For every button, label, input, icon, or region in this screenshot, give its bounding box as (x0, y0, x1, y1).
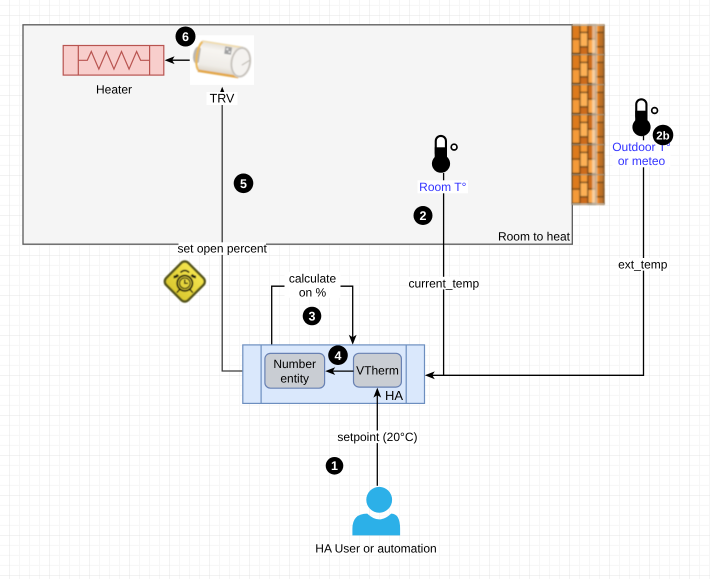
svg-text:Room T°: Room T° (419, 180, 466, 194)
svg-text:on %: on % (299, 285, 327, 299)
svg-text:2b: 2b (656, 130, 669, 142)
svg-text:HA: HA (385, 388, 403, 403)
svg-text:or meteo: or meteo (618, 154, 666, 168)
svg-text:6: 6 (182, 30, 189, 44)
svg-text:calculate: calculate (289, 271, 337, 285)
svg-text:TRV: TRV (210, 92, 235, 106)
svg-text:setpoint (20°C): setpoint (20°C) (337, 430, 417, 444)
svg-text:3: 3 (309, 310, 316, 324)
svg-text:set open percent: set open percent (177, 242, 267, 256)
svg-text:2: 2 (420, 209, 427, 223)
svg-text:4: 4 (335, 349, 342, 363)
svg-text:Heater: Heater (96, 83, 132, 97)
svg-text:HA User or automation: HA User or automation (315, 542, 436, 556)
svg-text:entity: entity (280, 372, 309, 386)
svg-text:Room to heat: Room to heat (498, 230, 571, 244)
svg-text:ext_temp: ext_temp (618, 258, 668, 272)
svg-text:Number: Number (273, 357, 316, 371)
svg-text:current_temp: current_temp (408, 276, 479, 290)
svg-text:5: 5 (240, 177, 247, 191)
svg-text:1: 1 (331, 459, 338, 473)
svg-text:VTherm: VTherm (356, 363, 399, 377)
